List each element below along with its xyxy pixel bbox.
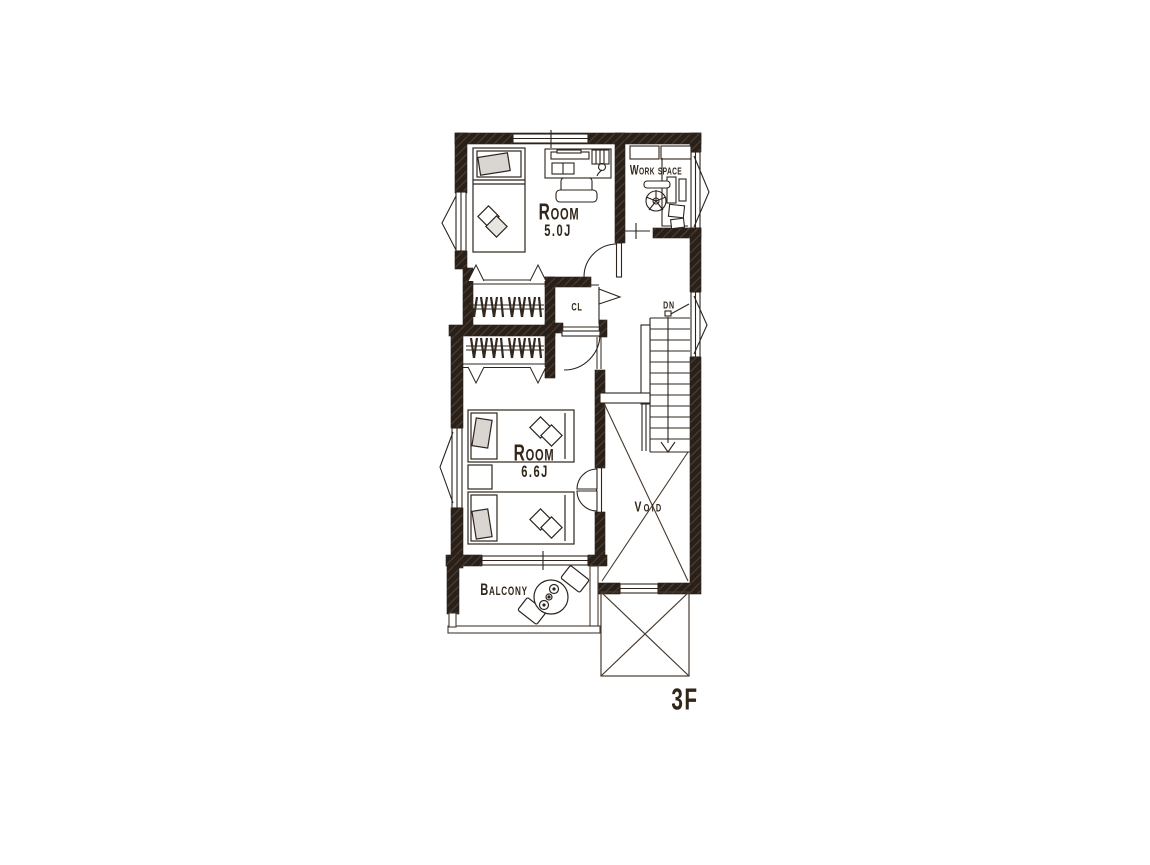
room2-size-label: 6.6J [521, 463, 549, 481]
door-closet-icon [562, 327, 600, 370]
closet-label: CL [571, 302, 582, 314]
stairs-icon [600, 304, 690, 452]
window-right-workspace-icon [691, 152, 709, 228]
floor-plan-drawing [0, 0, 1150, 865]
window-left-room2-icon [440, 428, 462, 508]
nightstand-icon [468, 465, 492, 489]
void-cross [602, 399, 688, 581]
door-room1-icon [584, 243, 622, 277]
floor-plan-page: Room 5.0J Work space CL DN Room 6.6J Voi… [0, 0, 1150, 865]
window-left-room1-icon [442, 192, 466, 251]
stairs-dn-label: DN [663, 300, 675, 312]
office-chair-icon [644, 181, 670, 211]
workspace-furniture-icon [630, 146, 691, 229]
closet-room2-icon [463, 338, 546, 383]
doors [562, 223, 650, 512]
workspace-label: Work space [630, 162, 682, 177]
window-right-stairs-icon [691, 292, 707, 357]
balcony-label: Balcony [480, 581, 528, 599]
balcony-table-set-icon [518, 565, 590, 624]
desk-room1-icon [545, 149, 611, 202]
closet-room1-icon [463, 265, 546, 317]
bed-b-room2-icon [468, 492, 574, 544]
room1-size-label: 5.0J [544, 222, 572, 240]
window-top-icon [513, 130, 588, 148]
bed-room1-icon [473, 148, 525, 252]
door-flag-icon [599, 287, 620, 324]
void-label: Void [635, 497, 664, 514]
door-room2-double-icon [577, 468, 602, 512]
workspace-threshold-icon [622, 223, 650, 239]
floor-level-label: 3F [671, 683, 698, 718]
lower-roof-box [601, 592, 689, 676]
window-void-icon [620, 584, 658, 593]
